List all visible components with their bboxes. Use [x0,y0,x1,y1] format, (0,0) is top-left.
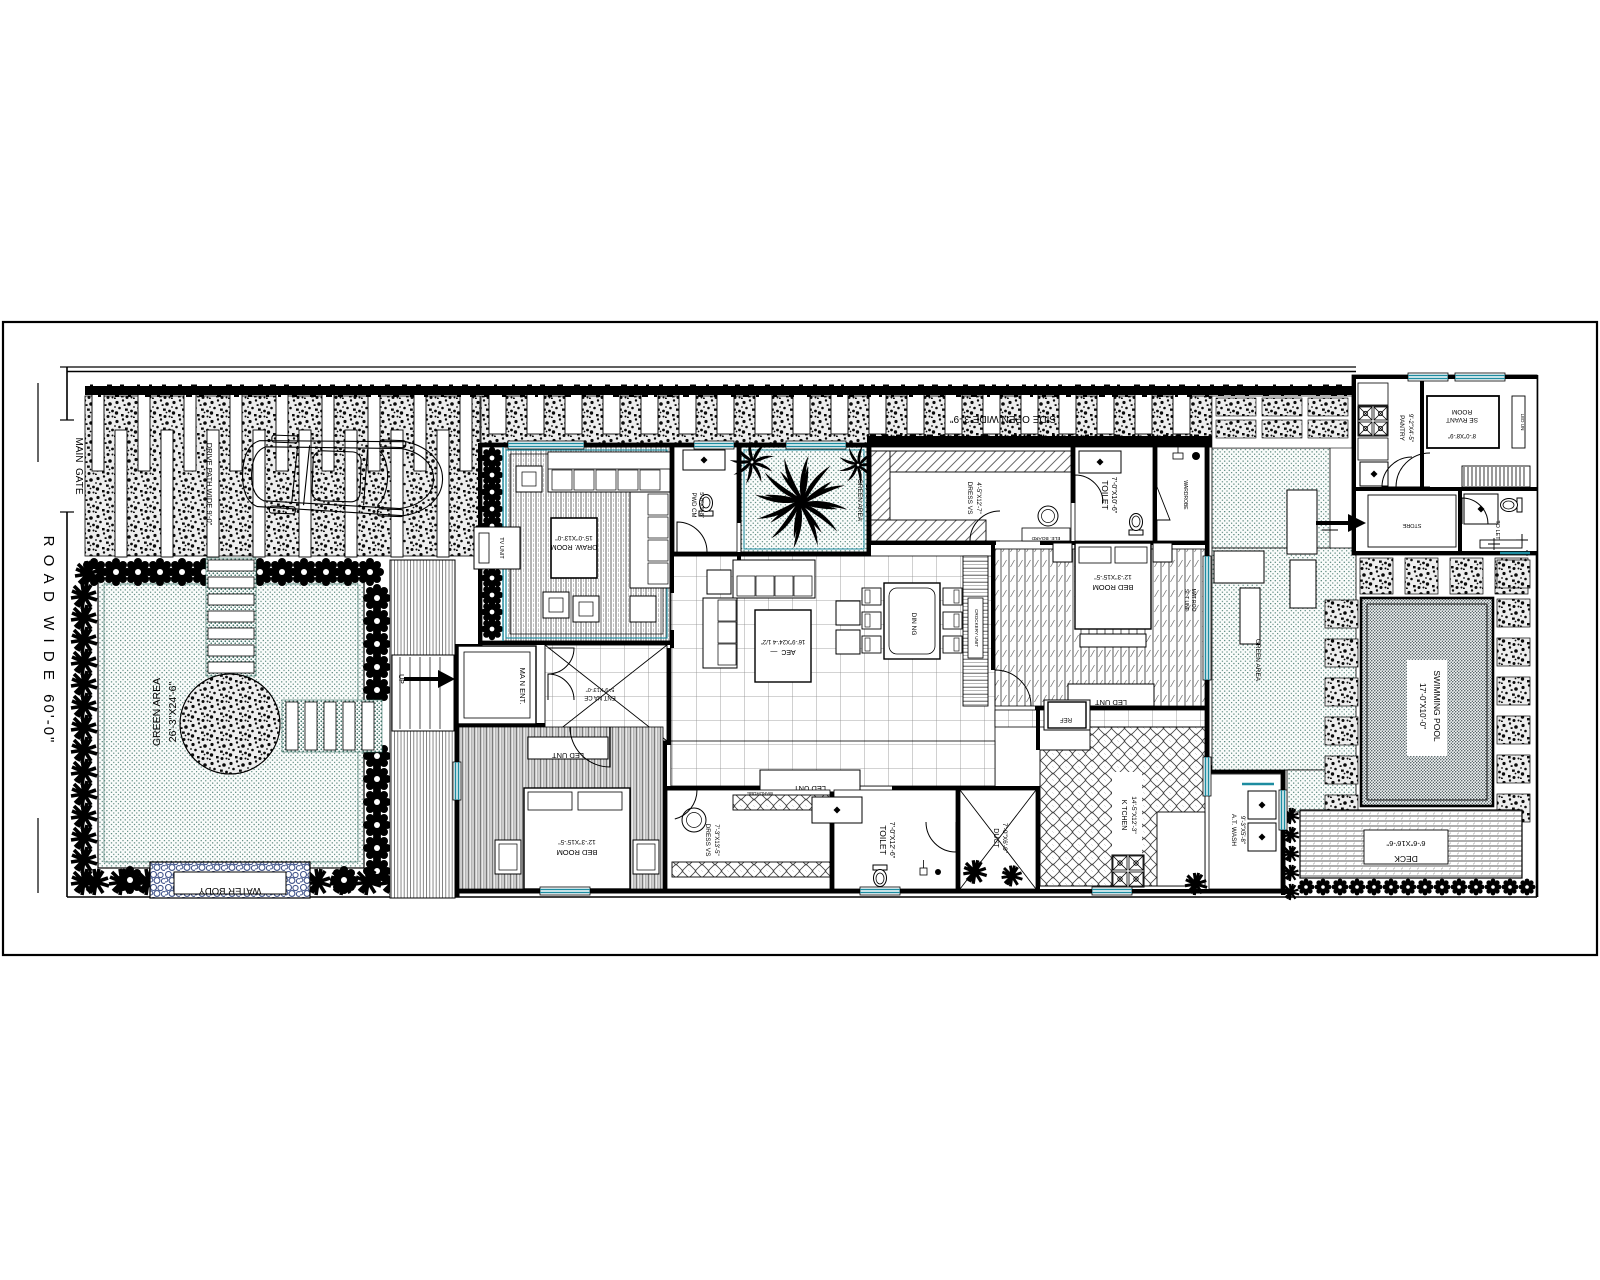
svg-text:17'-0"X10'-0": 17'-0"X10'-0" [1418,683,1427,729]
svg-text:TV UNIT: TV UNIT [498,537,504,559]
svg-text:SWIMMING POOL: SWIMMING POOL [1432,670,1442,742]
svg-text:10'-6"X9'-9": 10'-6"X9'-9" [864,484,870,515]
svg-text:7'-0"X12'-6": 7'-0"X12'-6" [888,822,895,859]
svg-text:LED UN: LED UN [1520,414,1525,431]
svg-text:DRIVE PATH WIDE 9'-0": DRIVE PATH WIDE 9'-0" [205,443,214,526]
svg-text:12'-3"X15'-5": 12'-3"X15'-5" [1094,573,1132,580]
svg-text:9'-2"X4'-5": 9'-2"X4'-5" [1407,414,1413,442]
svg-text:MA N ENT.: MA N ENT. [518,668,527,705]
svg-text:5'-9"X13'-0": 5'-9"X13'-0" [586,686,615,692]
svg-text:LED UNT: LED UNT [1095,698,1128,707]
svg-text:GREEN AREA: GREEN AREA [1254,639,1261,682]
svg-text:12'-3"X15'-5": 12'-3"X15'-5" [558,838,596,845]
svg-text:AEC —: AEC — [770,648,795,655]
svg-text:PWD CM: PWD CM [690,493,696,518]
svg-text:7'-0"X6'-9": 7'-0"X6'-9" [1001,823,1008,854]
svg-text:SE RVANT: SE RVANT [1446,416,1478,423]
svg-text:R O A D W I D E 60'-0": R O A D W I D E 60'-0" [40,536,57,745]
svg-text:WARDROBE: WARDROBE [1182,480,1188,510]
svg-text:DRESS VS: DRESS VS [704,824,711,858]
svg-text:SIDE OPEN WIDE 3'-9": SIDE OPEN WIDE 3'-9" [950,413,1056,424]
svg-text:DRESS VS: DRESS VS [966,482,973,516]
svg-text:BED ROOM: BED ROOM [557,848,598,857]
svg-text:TO LET: TO LET [1494,520,1500,540]
svg-text:15'-0"X13'-0": 15'-0"X13'-0" [555,534,593,541]
svg-text:26'-3"X24'-6": 26'-3"X24'-6" [167,681,179,742]
svg-text:DECK: DECK [1394,854,1418,864]
svg-text:CROCKERY UNIT: CROCKERY UNIT [974,609,979,647]
svg-text:STORE: STORE [1402,522,1421,528]
svg-text:4'-5"X12'-7": 4'-5"X12'-7" [975,482,981,513]
svg-text:MAIN GATE: MAIN GATE [73,437,84,494]
svg-text:ROOM: ROOM [1452,408,1472,415]
svg-text:DUCT: DUCT [992,828,999,848]
svg-text:14'-5"X12'-3": 14'-5"X12'-3" [1130,796,1137,834]
svg-text:REF: REF [1060,716,1072,722]
svg-text:DIN NG: DIN NG [910,613,917,636]
svg-text:5'-0"X5'-8": 5'-0"X5'-8" [698,492,704,518]
svg-text:16'-9"X24'-4 1/2": 16'-9"X24'-4 1/2" [761,638,806,644]
svg-text:7'-3"X13'-5": 7'-3"X13'-5" [713,824,719,855]
svg-text:GREEN AREA: GREEN AREA [856,479,863,522]
svg-text:7'-0"X10'-6": 7'-0"X10'-6" [1110,477,1117,514]
svg-text:BED ROOM: BED ROOM [1093,583,1134,592]
svg-text:9'-3"X5'-8": 9'-3"X5'-8" [1239,816,1245,844]
svg-text:DRAW. ROOM: DRAW. ROOM [551,543,598,550]
svg-text:ENT NA CE: ENT NA CE [584,694,616,700]
svg-text:SL T UNE: SL T UNE [1183,589,1189,612]
svg-text:WATER BODY: WATER BODY [198,885,261,896]
svg-text:A.T. WASH: A.T. WASH [1230,814,1237,847]
svg-text:MAT ROO: MAT ROO [1190,589,1196,612]
svg-text:GREEN AREA: GREEN AREA [151,678,163,746]
svg-text:WARDROBE: WARDROBE [747,791,773,796]
svg-text:TOILET: TOILET [878,825,888,855]
svg-text:6'-6"X16'-6": 6'-6"X16'-6" [1386,839,1425,848]
svg-text:K TCHEN: K TCHEN [1120,800,1127,831]
svg-text:PANTRY: PANTRY [1398,415,1405,441]
svg-text:UP: UP [397,674,404,684]
svg-text:ELE. BOARD: ELE. BOARD [1031,535,1060,541]
svg-text:8'-0"X8'-9": 8'-0"X8'-9" [1448,432,1476,438]
